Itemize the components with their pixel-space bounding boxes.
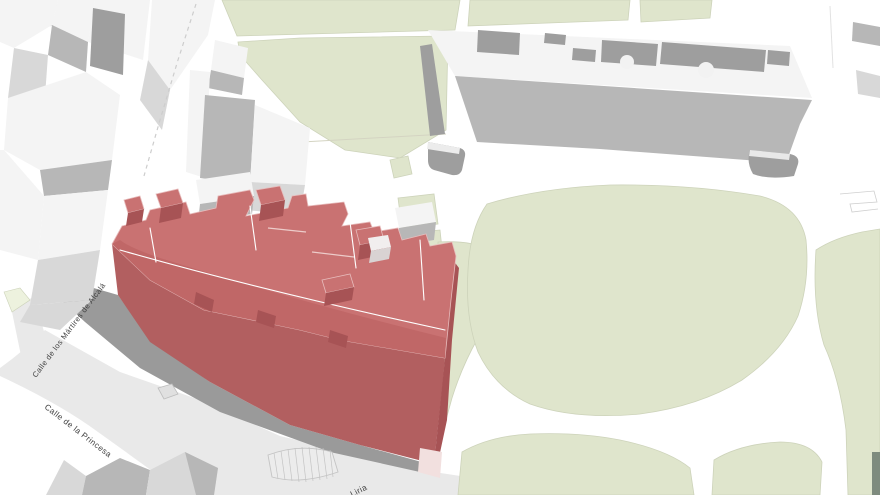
roof-arch: [620, 55, 634, 69]
map-canvas-3d[interactable]: Calle de los Mártires de Alcalá Calle de…: [0, 0, 880, 495]
roof-structure: [572, 48, 596, 62]
map-viewport[interactable]: Calle de los Mártires de Alcalá Calle de…: [0, 0, 880, 495]
building-block: [38, 190, 108, 260]
hedge-strip: [872, 452, 880, 495]
building-wall: [90, 8, 125, 75]
lawn-top-3: [640, 0, 712, 22]
roof-structure: [767, 50, 790, 66]
roof-structure: [477, 30, 520, 55]
roof-structure: [544, 33, 566, 45]
roof-arch: [698, 62, 714, 78]
park-patch-1: [390, 156, 412, 178]
lawn-top-1: [222, 0, 460, 36]
building-wall: [200, 95, 255, 185]
